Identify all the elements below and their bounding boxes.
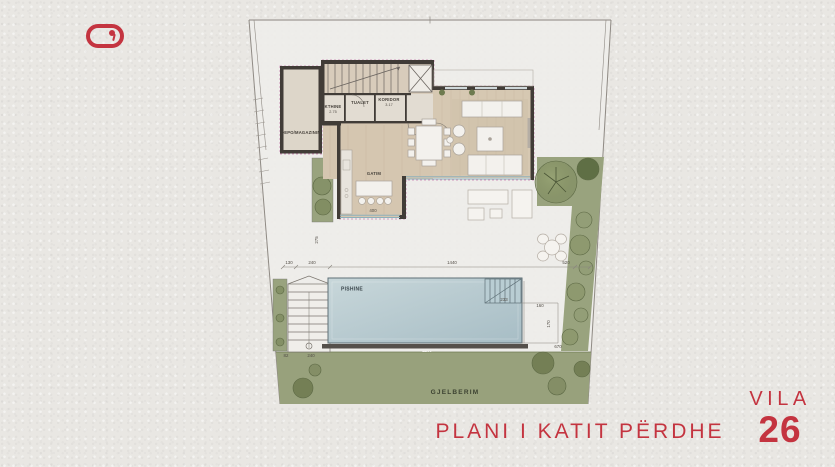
dim-pool-side-a: 160 bbox=[536, 304, 543, 308]
dim-terrace-width: 1440 bbox=[447, 261, 457, 265]
site-plan-drawing bbox=[0, 0, 835, 467]
window-segments bbox=[445, 87, 527, 89]
dim-island-width: 400 bbox=[369, 209, 376, 213]
living-room-set bbox=[439, 90, 531, 176]
label-cooking-area: GATIM bbox=[367, 172, 381, 176]
dim-left-steps-width: 240 bbox=[308, 261, 315, 265]
label-storage-room: DEPO/MAGAZINIM bbox=[281, 131, 321, 135]
label-corridor: KORIDOR bbox=[378, 98, 399, 102]
dim-pool-right-width: 670 bbox=[554, 345, 561, 349]
floor-plan-render: DEPO/MAGAZINIM KORIDOR 3.17 TUALET KTHIN… bbox=[0, 0, 835, 467]
dim-pool-length: 1200 bbox=[422, 349, 432, 353]
label-utility-room: KTHINE bbox=[325, 105, 342, 109]
label-greenery: GJELBERIM bbox=[431, 390, 480, 397]
dim-stair-bottom-width: 240 bbox=[307, 354, 314, 358]
dim-terrace-depth: 275 bbox=[315, 236, 319, 243]
shaft-x-box bbox=[409, 65, 432, 92]
page-title: PLANI I KATIT PËRDHE bbox=[380, 420, 780, 444]
villa-badge: VILA 26 bbox=[742, 388, 818, 451]
label-utility-area: 2.75 bbox=[329, 111, 336, 115]
villa-number: 26 bbox=[742, 409, 818, 451]
label-toilet: TUALET bbox=[351, 101, 369, 105]
label-corridor-area: 3.17 bbox=[385, 104, 392, 108]
label-pool: PISHINE bbox=[341, 288, 363, 293]
dim-stair-bottom-left: 82 bbox=[284, 354, 289, 358]
dim-left-offset: 130 bbox=[285, 261, 292, 265]
dim-pool-side-b: 170 bbox=[547, 320, 551, 327]
dim-right-offset: 520 bbox=[562, 261, 569, 265]
villa-label: VILA bbox=[742, 388, 818, 411]
exterior-stairs bbox=[288, 276, 330, 352]
dim-pool-steps-width: 233 bbox=[500, 298, 507, 302]
